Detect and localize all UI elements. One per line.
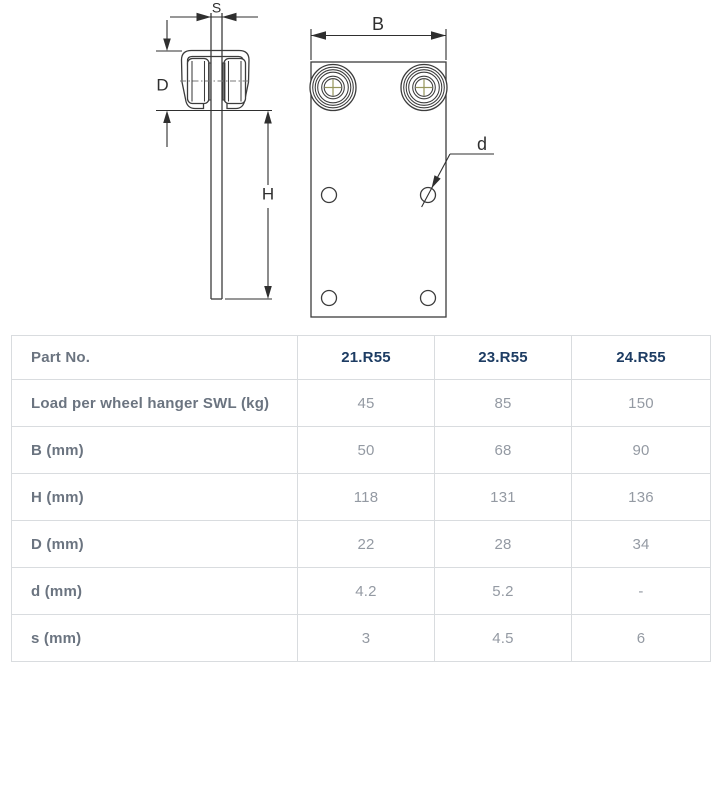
- table-header-row: Part No. 21.R55 23.R55 24.R55: [12, 336, 711, 380]
- part-number-col-3: 24.R55: [572, 336, 711, 380]
- cell-value: 22: [298, 521, 435, 568]
- cell-value: 3: [298, 615, 435, 662]
- cell-value: 150: [572, 380, 711, 427]
- wheel-left: [310, 65, 356, 111]
- cell-value: 28: [435, 521, 572, 568]
- table-row-B: B (mm) 50 68 90: [12, 427, 711, 474]
- dimension-B: B: [311, 14, 446, 60]
- side-view: S D H: [156, 0, 274, 299]
- cell-value: 6: [572, 615, 711, 662]
- cell-value: 90: [572, 427, 711, 474]
- table-row-s: s (mm) 3 4.5 6: [12, 615, 711, 662]
- cell-value: 5.2: [435, 568, 572, 615]
- spec-table: Part No. 21.R55 23.R55 24.R55 Load per w…: [11, 335, 711, 662]
- cell-value: 4.5: [435, 615, 572, 662]
- row-label: d (mm): [12, 568, 298, 615]
- part-number-col-2: 23.R55: [435, 336, 572, 380]
- cell-value: 50: [298, 427, 435, 474]
- cell-value: 45: [298, 380, 435, 427]
- table-row-H: H (mm) 118 131 136: [12, 474, 711, 521]
- table-row-d: d (mm) 4.2 5.2 -: [12, 568, 711, 615]
- row-label: Load per wheel hanger SWL (kg): [12, 380, 298, 427]
- part-number-col-1: 21.R55: [298, 336, 435, 380]
- technical-drawing: S D H: [0, 0, 720, 330]
- cell-value: 68: [435, 427, 572, 474]
- row-label: H (mm): [12, 474, 298, 521]
- cell-value: -: [572, 568, 711, 615]
- front-view: B d: [310, 14, 494, 317]
- cell-value: 34: [572, 521, 711, 568]
- dimension-label-s: S: [212, 0, 221, 16]
- dimension-label-H: H: [262, 185, 274, 204]
- cell-value: 85: [435, 380, 572, 427]
- table-row-D: D (mm) 22 28 34: [12, 521, 711, 568]
- row-label: B (mm): [12, 427, 298, 474]
- row-label-part-no: Part No.: [12, 336, 298, 380]
- dimension-s: S: [170, 0, 258, 21]
- row-label: s (mm): [12, 615, 298, 662]
- wheel-right: [401, 65, 447, 111]
- cell-value: 118: [298, 474, 435, 521]
- cell-value: 136: [572, 474, 711, 521]
- hole-top-left: [322, 188, 337, 203]
- dimension-label-D: D: [156, 76, 168, 95]
- cell-value: 131: [435, 474, 572, 521]
- hole-bottom-right: [421, 291, 436, 306]
- hole-bottom-left: [322, 291, 337, 306]
- row-label: D (mm): [12, 521, 298, 568]
- dimension-H: H: [225, 111, 274, 300]
- dimension-label-B: B: [372, 14, 384, 34]
- dimension-label-d: d: [477, 134, 487, 154]
- table-row-load: Load per wheel hanger SWL (kg) 45 85 150: [12, 380, 711, 427]
- dimension-D: D: [156, 20, 272, 147]
- cell-value: 4.2: [298, 568, 435, 615]
